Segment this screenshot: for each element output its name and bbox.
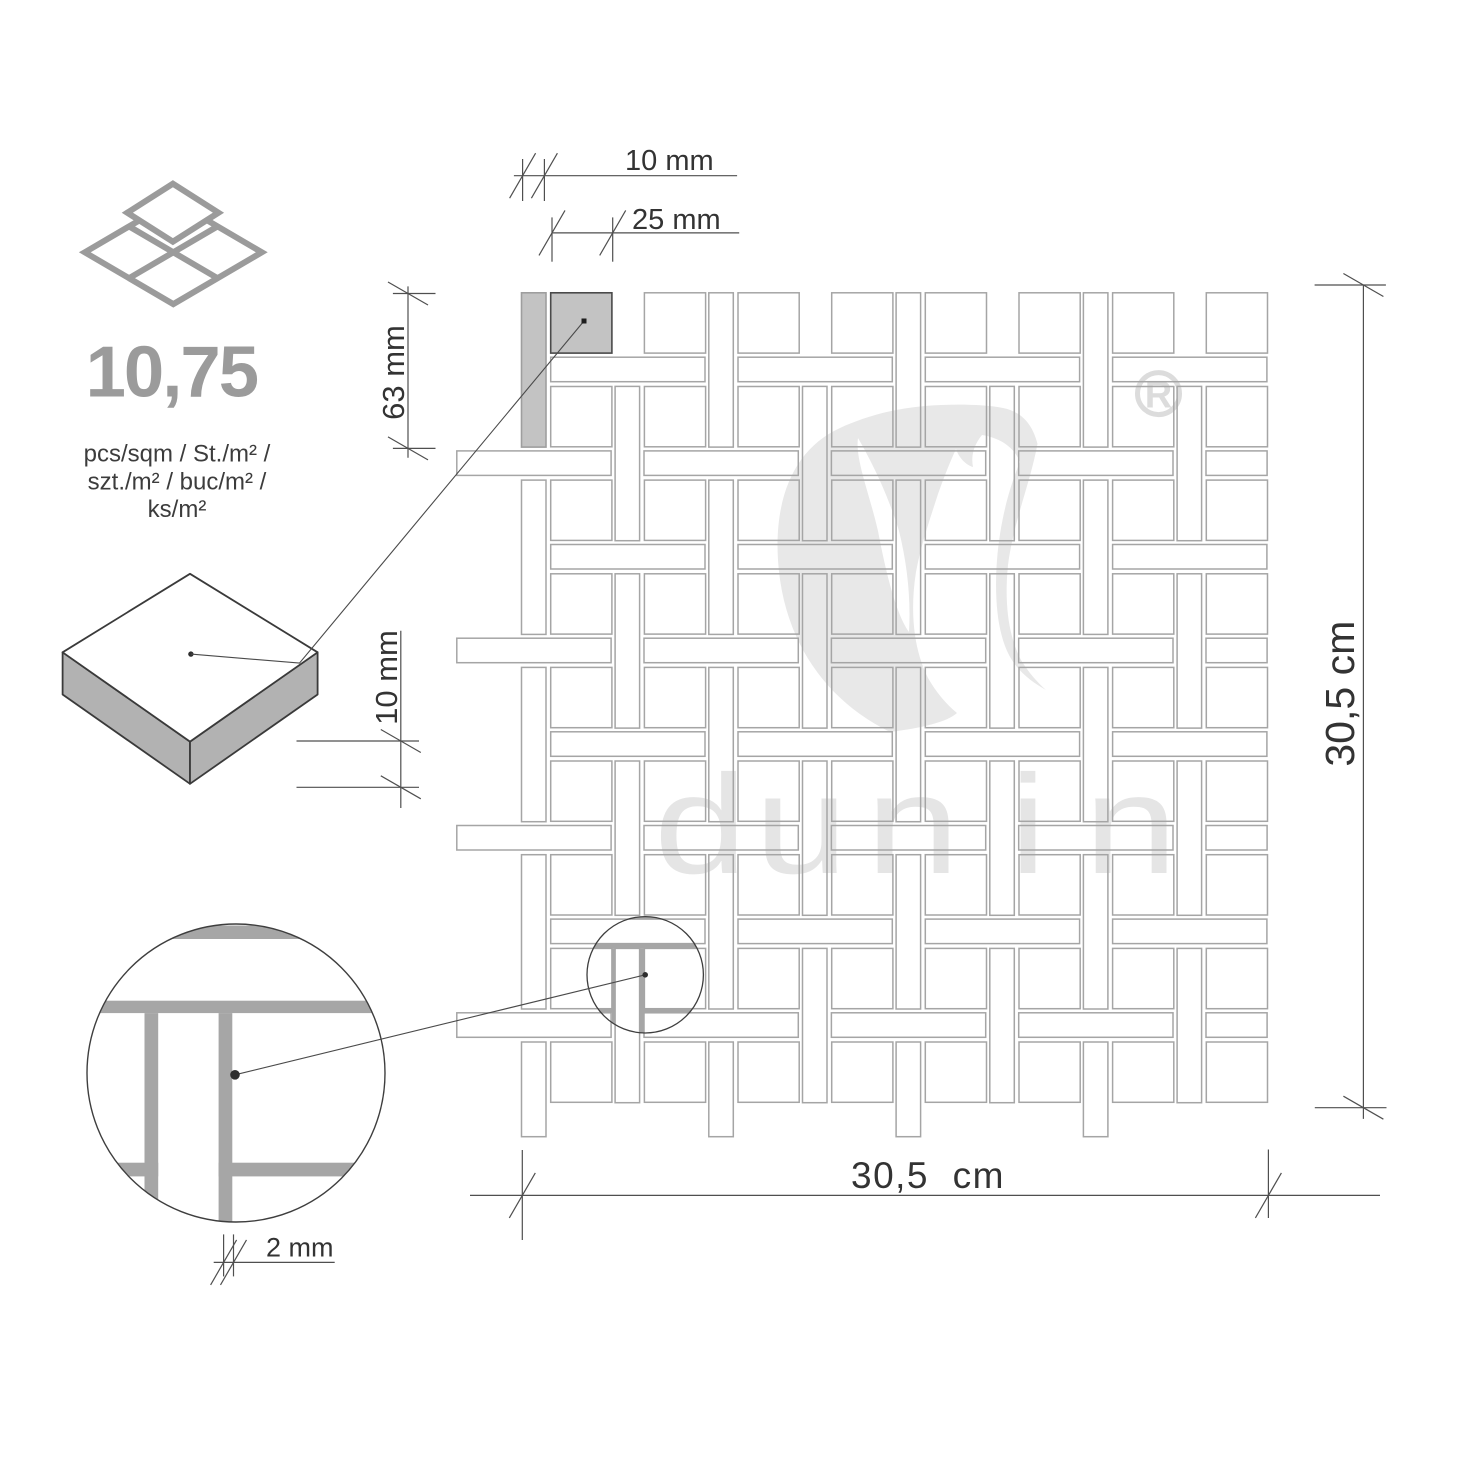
svg-text:63 mm: 63 mm <box>376 325 411 420</box>
svg-text:szt./m² / buc/m² /: szt./m² / buc/m² / <box>88 469 267 496</box>
svg-text:u: u <box>755 746 848 903</box>
svg-text:2 mm: 2 mm <box>266 1233 334 1263</box>
svg-text:n: n <box>1084 746 1177 903</box>
svg-text:n: n <box>866 746 959 903</box>
svg-text:10 mm: 10 mm <box>369 630 404 725</box>
svg-text:30,5 cm: 30,5 cm <box>851 1155 1005 1196</box>
svg-text:10 mm: 10 mm <box>625 145 714 177</box>
svg-text:ks/m²: ks/m² <box>148 496 207 523</box>
svg-text:30,5 cm: 30,5 cm <box>1317 621 1363 767</box>
svg-text:25 mm: 25 mm <box>632 204 721 236</box>
svg-text:R: R <box>1145 374 1172 416</box>
svg-text:10,75: 10,75 <box>86 332 258 413</box>
svg-text:pcs/sqm / St./m² /: pcs/sqm / St./m² / <box>84 440 271 467</box>
